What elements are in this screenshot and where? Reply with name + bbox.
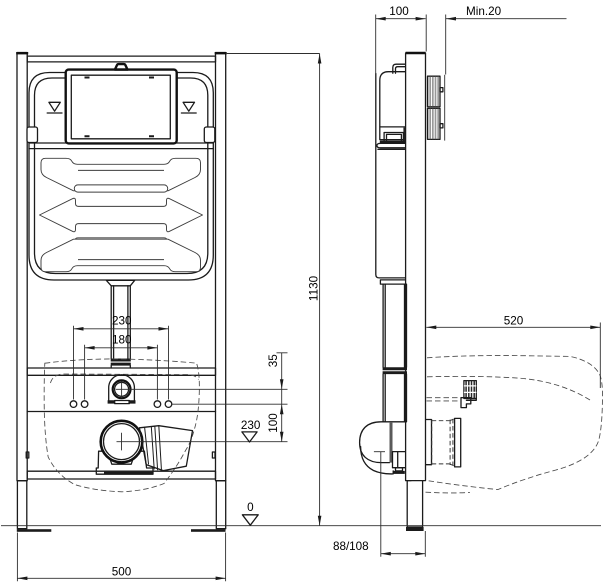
- svg-text:230: 230: [241, 419, 261, 432]
- svg-text:100: 100: [267, 413, 280, 433]
- svg-text:1130: 1130: [307, 275, 320, 301]
- svg-text:180: 180: [112, 334, 132, 347]
- svg-text:Min.20: Min.20: [466, 5, 502, 18]
- svg-text:500: 500: [112, 565, 132, 578]
- svg-text:520: 520: [504, 315, 524, 328]
- svg-text:0: 0: [247, 501, 254, 514]
- svg-text:35: 35: [267, 354, 280, 368]
- svg-text:230: 230: [112, 314, 132, 327]
- svg-text:100: 100: [389, 5, 409, 18]
- svg-text:88/108: 88/108: [333, 540, 369, 553]
